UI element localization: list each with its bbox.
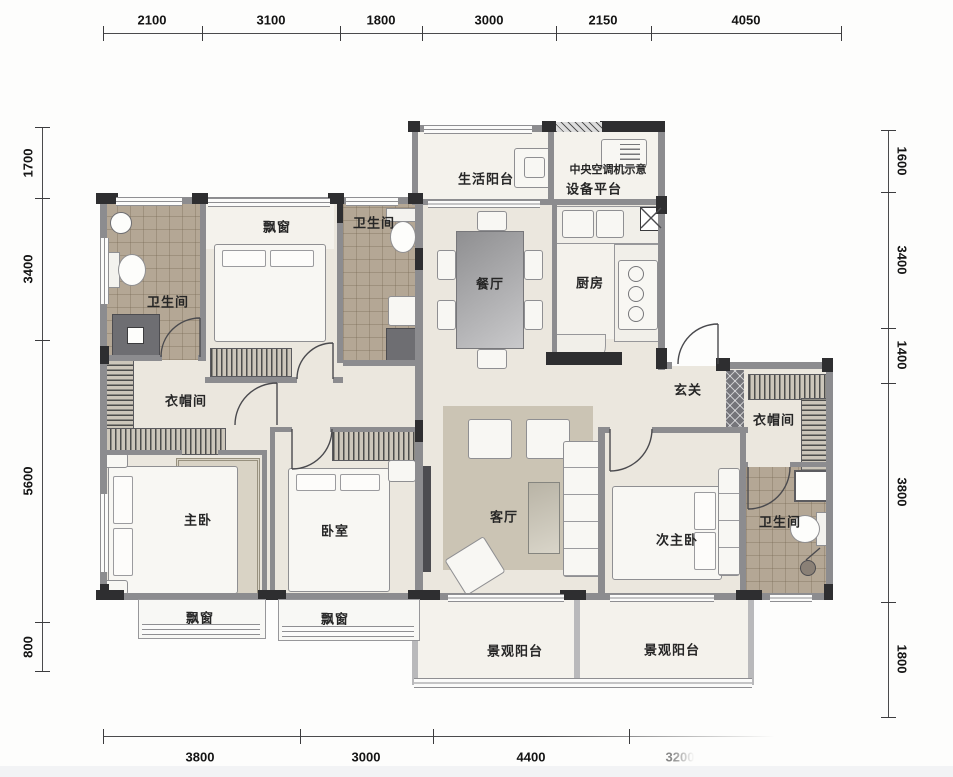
dimension-tick	[35, 340, 50, 341]
dimension-tick	[35, 622, 50, 623]
dim-top-4: 3000	[475, 13, 504, 28]
dimension-tick	[881, 130, 896, 131]
coffee-table	[528, 482, 560, 554]
room-label-bath-mid: 卫生间	[353, 213, 395, 232]
room-label-closet-right: 衣帽间	[753, 410, 795, 429]
sliding-door	[448, 594, 564, 602]
room-label-dining: 餐厅	[476, 274, 504, 293]
dresser-column	[718, 468, 740, 576]
toilet-bowl	[118, 254, 146, 286]
wall-segment	[824, 584, 833, 600]
wall-segment	[100, 450, 182, 455]
room-label-bay-bottom-mid: 飘窗	[321, 609, 349, 628]
wall-segment	[598, 427, 605, 600]
room-label-view-balcony-right: 景观阳台	[644, 640, 700, 659]
wall-segment	[740, 430, 746, 600]
wall-segment	[718, 362, 833, 369]
dimension-tick	[103, 729, 104, 744]
wall-segment	[826, 362, 833, 600]
wall-segment	[200, 197, 206, 359]
dim-bottom-3: 4400	[517, 750, 546, 765]
floor-plan: 生活阳台 中央空调机示意 设备平台 餐厅 厨房 玄关 卫生间 卫生间 卫生间 飘…	[0, 0, 953, 777]
dining-chair	[524, 250, 543, 280]
balcony-railing	[414, 678, 752, 688]
room-label-bath-right: 卫生间	[759, 512, 801, 531]
closet-left-wardrobe	[104, 358, 134, 432]
shower	[386, 328, 418, 364]
kitchen-sink	[596, 210, 624, 238]
sink-round	[110, 212, 132, 234]
dimension-tick	[35, 127, 50, 128]
dining-chair	[437, 250, 456, 280]
dimension-line-right	[888, 130, 889, 717]
wall-segment	[333, 377, 343, 383]
wall-segment	[415, 420, 423, 442]
wall-segment	[100, 355, 162, 361]
wall-segment	[656, 348, 667, 369]
room-label-equipment-platform: 设备平台	[566, 179, 622, 198]
wall-segment	[548, 125, 554, 205]
dim-top-2: 3100	[257, 13, 286, 28]
dim-left-2: 3400	[21, 255, 36, 284]
dimension-tick	[202, 26, 203, 41]
dimension-tick	[422, 26, 423, 41]
dining-chair	[477, 211, 507, 231]
sliding-door	[428, 200, 540, 208]
nightstand	[104, 453, 128, 468]
dimension-tick	[35, 198, 50, 199]
pillow	[340, 474, 380, 491]
pillow	[270, 250, 314, 267]
window	[100, 494, 109, 572]
wall-segment	[716, 358, 730, 371]
dimension-tick	[881, 383, 896, 384]
wall-segment	[337, 193, 343, 223]
dim-top-1: 2100	[138, 13, 167, 28]
room-label-view-balcony-left: 景观阳台	[487, 641, 543, 660]
room-label-foyer: 玄关	[674, 380, 702, 399]
balcony-frame	[574, 600, 580, 685]
dim-right-3: 1400	[895, 341, 910, 370]
dim-bottom-2: 3000	[352, 750, 381, 765]
window	[282, 626, 414, 637]
window	[208, 198, 330, 207]
washing-machine-door	[524, 157, 545, 178]
burner	[628, 266, 644, 282]
dim-top-3: 1800	[367, 13, 396, 28]
pillow	[296, 474, 336, 491]
wall-segment	[218, 450, 266, 455]
dim-top-5: 2150	[589, 13, 618, 28]
dining-chair	[524, 300, 543, 330]
dim-right-5: 1800	[895, 645, 910, 674]
wall-segment	[736, 590, 762, 600]
bottom-strip	[0, 766, 953, 777]
dim-right-4: 3800	[895, 478, 910, 507]
wall-segment	[415, 248, 423, 270]
dining-chair	[437, 300, 456, 330]
burner	[628, 286, 644, 302]
balcony-frame	[748, 600, 754, 685]
sink	[388, 296, 418, 326]
room-label-bath-left: 卫生间	[147, 292, 189, 311]
dim-left-1: 1700	[21, 149, 36, 178]
pillow	[222, 250, 266, 267]
room-label-kitchen: 厨房	[576, 273, 604, 292]
wall-segment	[542, 121, 556, 132]
wall-segment	[100, 346, 109, 364]
wall-segment	[822, 358, 833, 372]
dim-left-4: 800	[21, 636, 36, 658]
wall-segment	[552, 203, 557, 365]
dimension-tick	[881, 602, 896, 603]
dining-chair	[477, 349, 507, 369]
wall-segment	[198, 355, 206, 361]
window	[424, 125, 532, 134]
pillow	[113, 476, 133, 524]
dimension-tick	[433, 729, 434, 744]
wall-segment	[343, 360, 422, 366]
dimension-tick	[556, 26, 557, 41]
room-label-second-master: 次主卧	[656, 530, 698, 549]
dimension-tick	[841, 26, 842, 41]
closet-right-wardrobe	[748, 374, 828, 400]
nightstand	[388, 460, 416, 482]
shower-drain	[800, 560, 816, 576]
pillow	[113, 528, 133, 576]
wall-segment	[408, 121, 420, 132]
room-label-ac-note: 中央空调机示意	[570, 161, 647, 177]
window	[116, 197, 182, 206]
dimension-tick	[629, 729, 630, 744]
pillow	[694, 492, 716, 530]
wall-segment	[96, 590, 124, 600]
bedroom-top-dresser	[210, 348, 292, 377]
dim-bottom-1: 3800	[186, 750, 215, 765]
room-label-living: 客厅	[490, 507, 518, 526]
wall-segment	[205, 377, 297, 383]
wall-segment	[656, 196, 667, 214]
dim-right-2: 3400	[895, 246, 910, 275]
window	[346, 197, 398, 206]
wall-segment	[96, 193, 118, 204]
dimension-tick	[35, 671, 50, 672]
wall-segment	[600, 121, 665, 132]
dimension-line-left	[42, 127, 43, 672]
dimension-tick	[103, 26, 104, 41]
room-label-service-balcony: 生活阳台	[458, 169, 514, 188]
entry-door	[678, 324, 718, 364]
room-label-bedroom: 卧室	[321, 521, 349, 540]
dimension-tick	[881, 328, 896, 329]
wall-segment	[652, 427, 748, 433]
dim-right-1: 1600	[895, 147, 910, 176]
bedroom-wardrobe	[332, 431, 418, 461]
dimension-tick	[881, 717, 896, 718]
wall-segment	[790, 462, 832, 467]
dim-top-6: 4050	[732, 13, 761, 28]
room-label-bay-top: 飘窗	[263, 217, 291, 236]
wall-hatch	[556, 122, 602, 132]
wall-segment	[546, 352, 622, 365]
window	[770, 594, 812, 602]
shower-drain	[127, 327, 144, 344]
window	[100, 238, 109, 304]
wall-segment	[330, 427, 422, 432]
wall-segment	[658, 125, 665, 370]
kitchen-sink	[562, 210, 594, 238]
room-label-bay-bottom-left: 飘窗	[186, 608, 214, 627]
dim-left-3: 5600	[21, 467, 36, 496]
dimension-tick	[340, 26, 341, 41]
dimension-line-top	[103, 33, 841, 34]
armchair	[468, 419, 512, 459]
dimension-line-bottom	[103, 736, 810, 737]
dimension-tick	[651, 26, 652, 41]
burner	[628, 306, 644, 322]
dimension-tick	[300, 729, 301, 744]
room-label-master: 主卧	[184, 510, 212, 529]
room-label-closet-left: 衣帽间	[165, 391, 207, 410]
sliding-door	[610, 594, 714, 602]
sink	[794, 470, 830, 502]
wall-segment	[742, 462, 748, 467]
wall-segment	[270, 427, 275, 600]
wall-segment	[408, 193, 423, 204]
foyer-cabinet	[726, 370, 744, 432]
ac-unit-grille	[620, 144, 640, 160]
dimension-tick	[881, 192, 896, 193]
wall-segment	[192, 193, 208, 204]
wall-segment	[262, 450, 267, 600]
dim-bottom-4: 3200	[666, 750, 695, 765]
closet-right-wardrobe-2	[801, 398, 828, 472]
